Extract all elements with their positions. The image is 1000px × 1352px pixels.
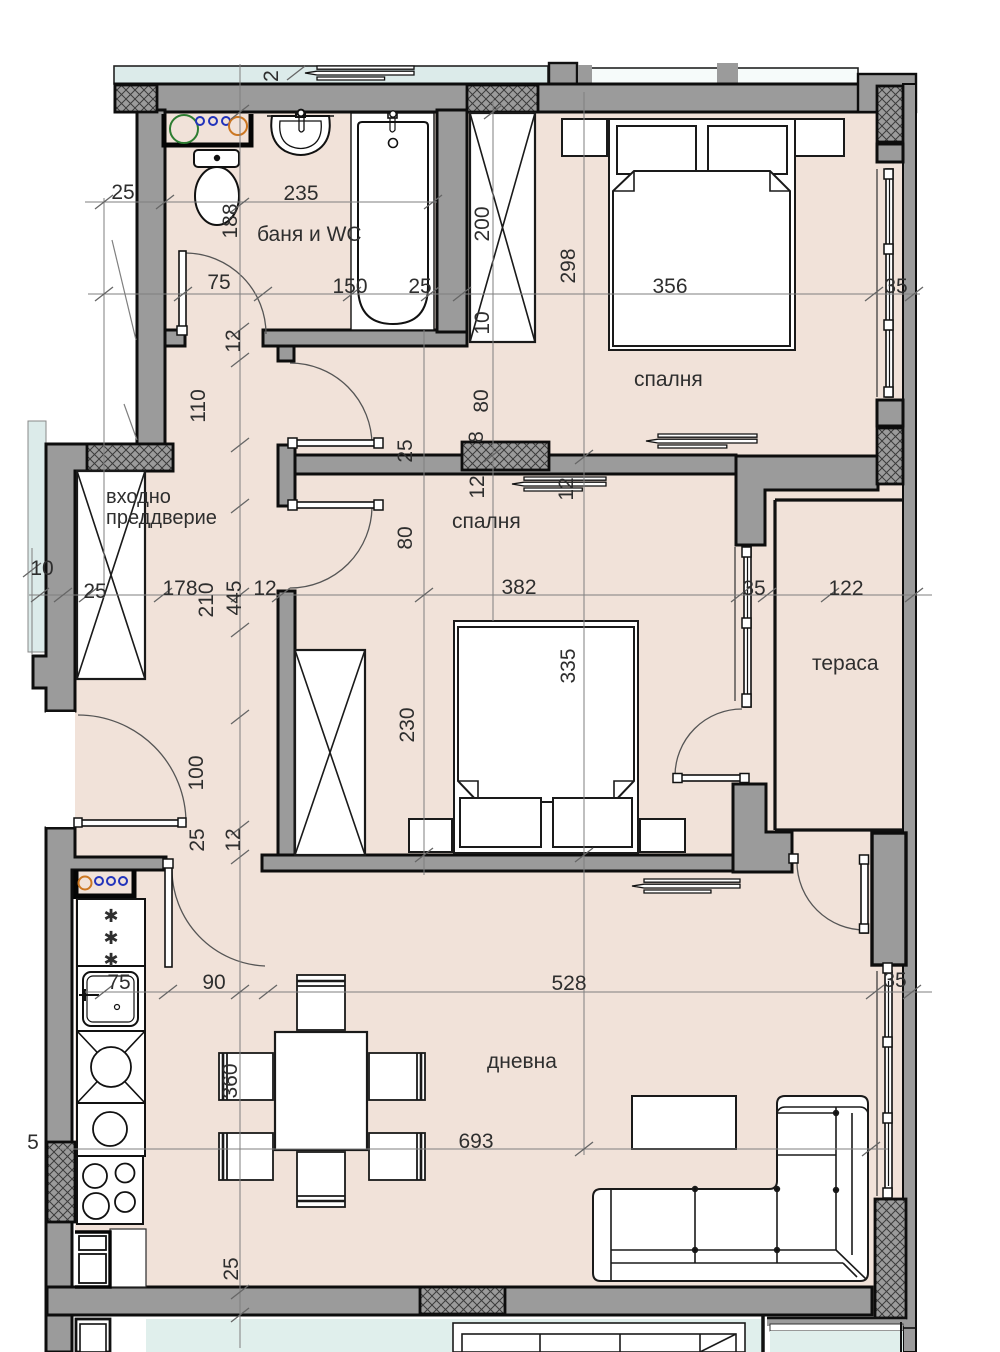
svg-text:178: 178	[162, 577, 197, 600]
svg-text:преддверие: преддверие	[106, 507, 217, 529]
svg-text:25: 25	[83, 580, 106, 603]
svg-text:356: 356	[652, 275, 687, 298]
svg-text:спалня: спалня	[452, 510, 521, 533]
svg-text:тераса: тераса	[812, 652, 879, 675]
svg-text:382: 382	[501, 576, 536, 599]
svg-text:12: 12	[222, 329, 245, 352]
svg-text:25: 25	[220, 1257, 243, 1280]
svg-text:2: 2	[260, 70, 283, 82]
svg-text:25: 25	[111, 181, 134, 204]
svg-text:12: 12	[555, 477, 578, 500]
svg-text:12: 12	[466, 475, 489, 498]
svg-text:230: 230	[396, 707, 419, 742]
svg-text:35: 35	[883, 969, 906, 992]
svg-text:100: 100	[185, 755, 208, 790]
svg-text:150: 150	[332, 275, 367, 298]
svg-text:25: 25	[394, 439, 417, 462]
svg-text:80: 80	[394, 526, 417, 549]
svg-text:90: 90	[202, 971, 225, 994]
svg-text:✱: ✱	[103, 906, 118, 926]
svg-text:445: 445	[223, 580, 246, 615]
svg-text:210: 210	[195, 582, 218, 617]
svg-text:12: 12	[222, 828, 245, 851]
svg-text:35: 35	[742, 577, 765, 600]
svg-text:12: 12	[253, 577, 276, 600]
svg-text:спалня: спалня	[634, 368, 703, 391]
svg-text:входно: входно	[106, 486, 171, 508]
svg-text:75: 75	[107, 971, 130, 994]
svg-text:25: 25	[408, 275, 431, 298]
svg-text:235: 235	[283, 182, 318, 205]
svg-text:10: 10	[471, 311, 494, 334]
svg-text:✱: ✱	[103, 928, 118, 948]
svg-text:298: 298	[557, 248, 580, 283]
svg-text:188: 188	[219, 203, 242, 238]
svg-text:баня и WC: баня и WC	[257, 223, 362, 246]
svg-text:✱: ✱	[103, 950, 118, 970]
svg-text:5: 5	[27, 1131, 39, 1154]
svg-text:528: 528	[551, 972, 586, 995]
svg-text:110: 110	[187, 389, 210, 422]
svg-text:35: 35	[884, 275, 907, 298]
svg-text:335: 335	[557, 648, 580, 683]
svg-text:360: 360	[219, 1063, 242, 1098]
svg-text:200: 200	[471, 206, 494, 241]
svg-text:693: 693	[458, 1130, 493, 1153]
svg-text:122: 122	[828, 577, 863, 600]
svg-text:8: 8	[465, 431, 488, 443]
svg-text:80: 80	[470, 389, 493, 412]
svg-text:75: 75	[207, 271, 230, 294]
svg-text:дневна: дневна	[487, 1050, 557, 1073]
svg-text:25: 25	[186, 828, 209, 851]
svg-text:10: 10	[30, 557, 53, 580]
